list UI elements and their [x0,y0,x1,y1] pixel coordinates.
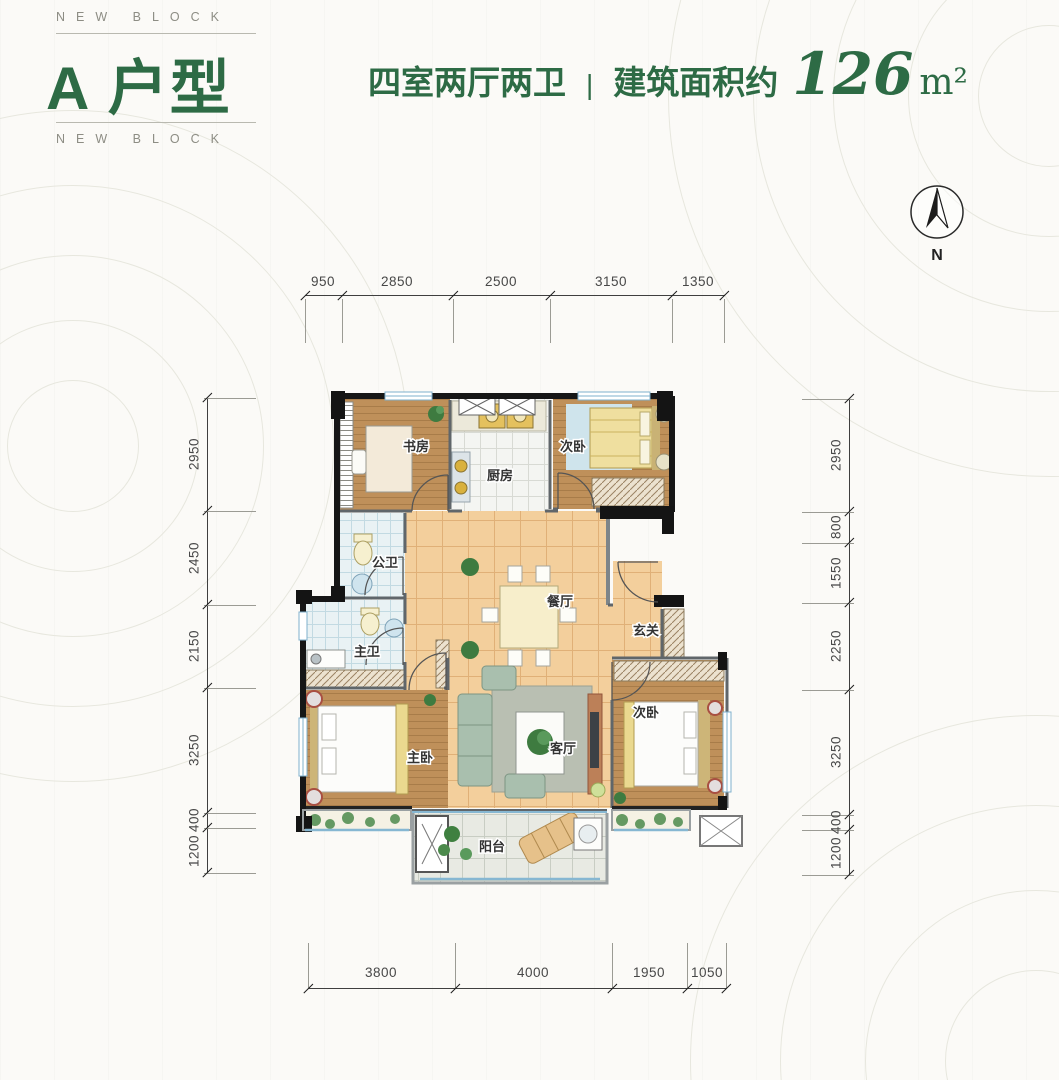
headboard [310,702,318,796]
nightstand [306,691,322,707]
dining-chair [536,650,550,666]
area-label: 建筑面积约 [613,56,778,104]
area-value: 126 [792,40,913,108]
plant [537,731,551,745]
dining-chair [482,608,498,622]
faucet [311,654,321,664]
dining-chair [508,566,522,582]
desk-chair [352,450,366,474]
sofa [458,694,492,786]
label-dining: 餐厅 [546,594,573,609]
page-title: A 户型 [46,40,232,127]
dimension-top: 950 2850 2500 3150 1350 [305,295,725,296]
burner [455,482,467,494]
pillow [684,712,696,738]
label-balcony: 阳台 [479,839,505,854]
bed-frame [396,704,408,794]
label-bedroom-master: 主卧 [407,750,433,765]
master-wardrobe [306,670,405,689]
second-wardrobe [614,661,724,681]
area-unit: m² [919,62,968,103]
dining-chair [536,566,550,582]
plant [461,558,479,576]
dining-chair [560,608,576,622]
tv [590,712,599,768]
dimension-right: 2950 800 1550 2250 3250 400 1200 [849,399,850,876]
pillow [322,748,336,774]
label-bath-public: 公卫 [372,555,398,570]
plant [438,844,450,856]
wardrobe [592,478,664,506]
brand-top: NEW BLOCK [56,10,230,24]
compass: N [902,182,972,272]
plan-subtitle: 四室两厅两卫 | 建筑面积约 126 m² [368,40,968,108]
desk [366,426,412,492]
burner [455,460,467,472]
plant [424,694,436,706]
plant [614,792,626,804]
nightstand [708,779,722,793]
plant [444,826,460,842]
shoe-cabinet [664,609,684,657]
brand-top-rule [56,33,256,34]
plant [436,406,444,414]
toilet [361,613,379,635]
label-kitchen: 厨房 [487,468,513,483]
label-foyer: 玄关 [633,623,659,638]
pillow [684,748,696,774]
pillow [640,412,650,436]
dining-chair [508,650,522,666]
north-label: N [931,247,943,264]
washer-door [579,825,597,843]
layout-text: 四室两厅两卫 [368,56,566,104]
armchair [505,774,545,798]
window [299,612,307,640]
dimension-left: 2950 2450 2150 3250 400 1200 [207,398,208,874]
floor-plan-svg: 书房 厨房 次卧 公卫 主卫 餐厅 玄关 主卧 客厅 次卧 阳台 [290,385,755,913]
brand-bottom-rule [56,122,256,123]
dimension-bottom: 3800 4000 1950 1050 [308,988,727,989]
brand-bottom: NEW BLOCK [56,132,230,146]
headboard [698,700,710,788]
nightstand [708,701,722,715]
pillow [322,714,336,740]
subtitle-divider: | [586,69,593,101]
toilet [354,541,372,565]
stool [591,783,605,797]
label-bedroom-top: 次卧 [560,439,586,454]
foyer-floor-strip [608,605,613,660]
pillow [640,440,650,464]
nightstand [306,789,322,805]
label-living: 客厅 [550,741,576,756]
plant [461,641,479,659]
plant [460,848,472,860]
armchair [482,666,516,690]
label-bath-master: 主卫 [354,644,380,659]
label-study: 书房 [403,439,429,454]
floorplan-page: NEW BLOCK A 户型 NEW BLOCK 四室两厅两卫 | 建筑面积约 … [0,0,1059,1080]
label-bedroom-second: 次卧 [633,705,659,720]
